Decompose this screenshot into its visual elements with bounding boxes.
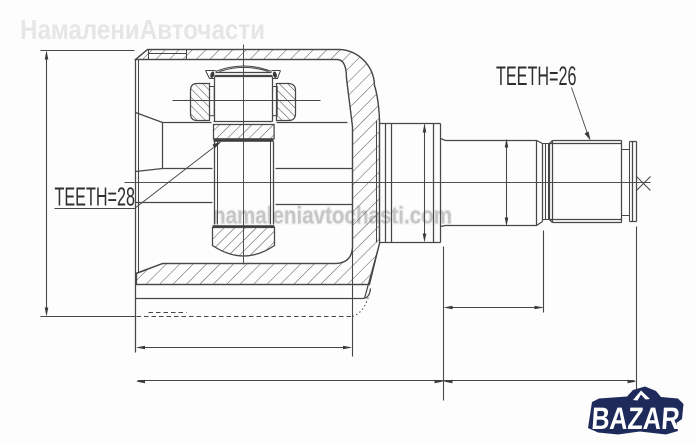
- svg-text:НамалениАвточасти: НамалениАвточасти: [20, 14, 265, 45]
- svg-text:TEETH=26: TEETH=26: [496, 61, 577, 91]
- svg-text:TEETH=28: TEETH=28: [55, 182, 136, 212]
- svg-text:BAZAR: BAZAR: [590, 401, 680, 436]
